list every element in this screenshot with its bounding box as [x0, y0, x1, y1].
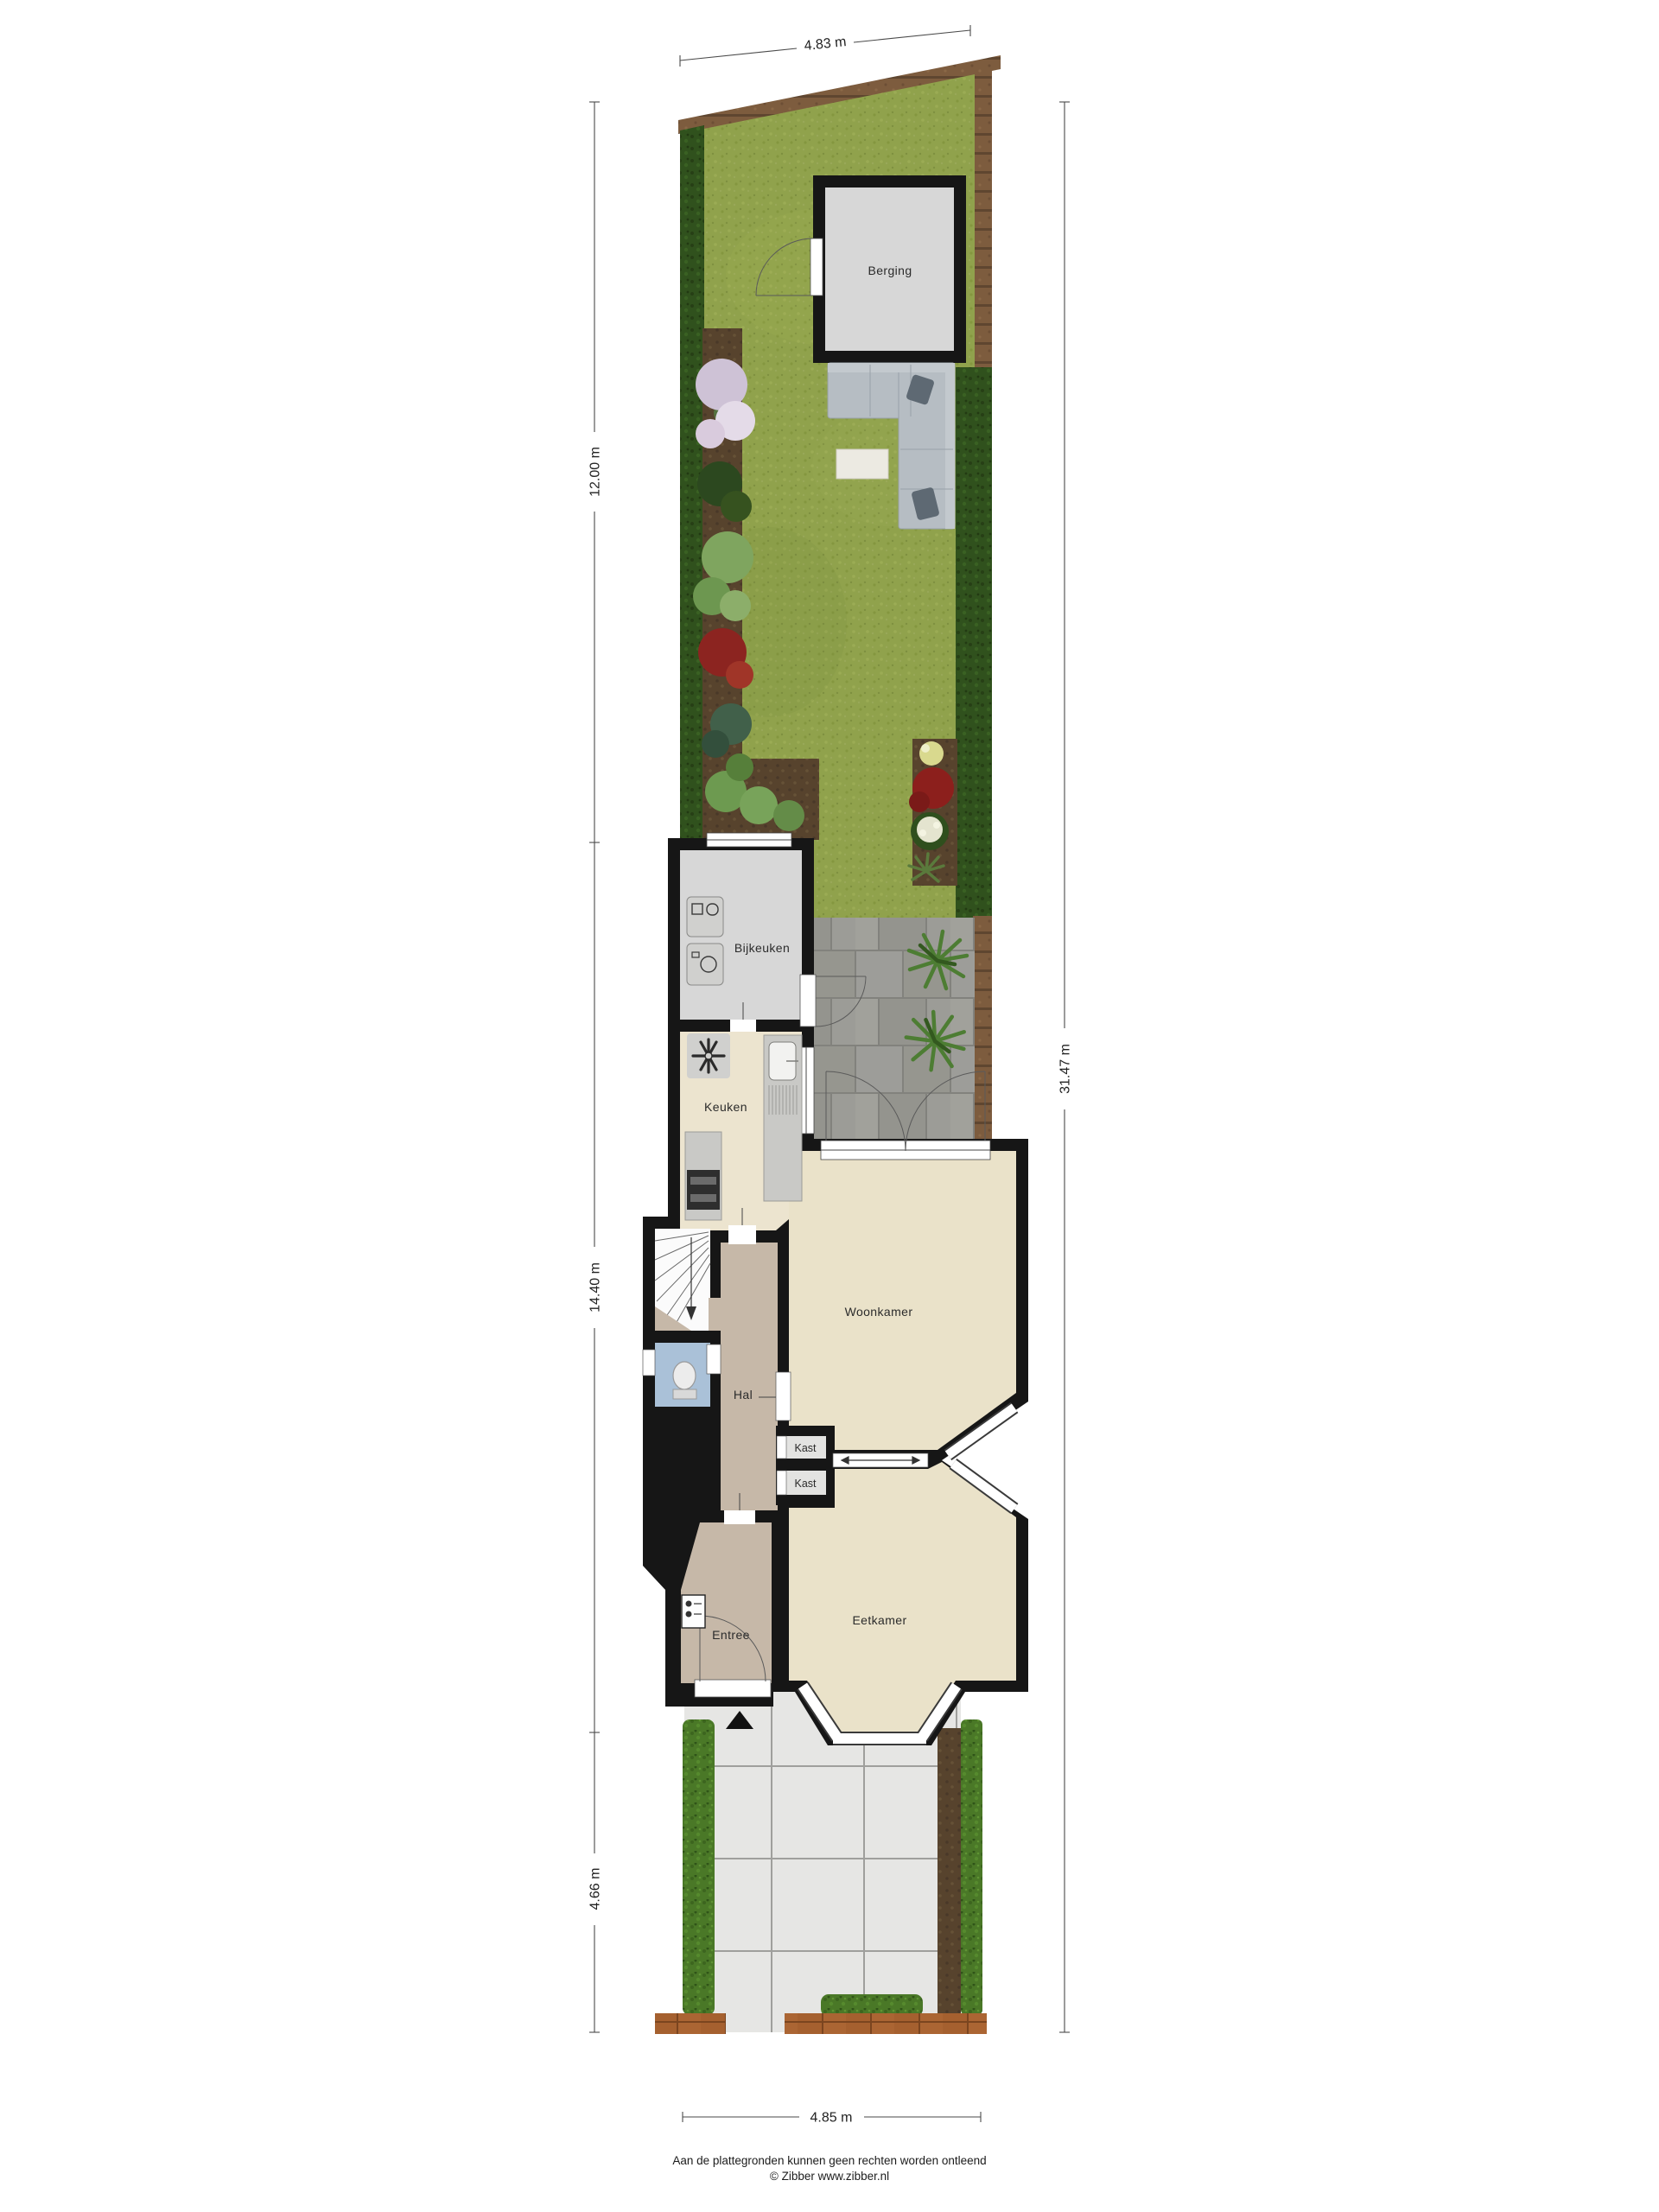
- terrace: [813, 918, 975, 1151]
- floor-plan-svg: Berging: [0, 0, 1659, 2212]
- room-label-entree: Entree: [712, 1628, 750, 1642]
- front-bed-right: [938, 1728, 961, 2015]
- room-label-kast-top: Kast: [794, 1442, 817, 1454]
- room-label-eetkamer: Eetkamer: [852, 1613, 906, 1627]
- hal-woonkamer-door: [776, 1372, 791, 1421]
- berging-door: [810, 238, 823, 296]
- dim-label-front-yard: 4.66 m: [588, 1868, 603, 1910]
- dim-garden-depth: 12.00 m: [588, 102, 603, 842]
- footer-disclaimer: Aan de plattegronden kunnen geen rechten…: [0, 2153, 1659, 2184]
- dim-total-depth: 31.47 m: [1058, 102, 1073, 2032]
- toilet-icon: [673, 1362, 696, 1399]
- dim-bottom-width: 4.85 m: [683, 2111, 981, 2126]
- stove-icon: [685, 1132, 721, 1220]
- fence-right-terrace: [973, 916, 992, 1151]
- disclaimer-text: Aan de plattegronden kunnen geen rechten…: [0, 2153, 1659, 2169]
- sidewalk-brick-right: [785, 2013, 987, 2034]
- room-label-hal: Hal: [734, 1388, 753, 1402]
- room-label-berging: Berging: [868, 264, 912, 277]
- dryer-icon: [687, 944, 723, 985]
- hal-entree-door: [724, 1510, 755, 1524]
- woonkamer-floor: [789, 1151, 1016, 1450]
- bijkeuken-keuken-door: [730, 1020, 756, 1032]
- kast-bottom-door: [777, 1471, 786, 1495]
- front-hedge-right: [961, 1719, 982, 2015]
- kast-top-door: [777, 1436, 786, 1459]
- keuken-hal-door: [728, 1225, 756, 1244]
- room-label-woonkamer: Woonkamer: [845, 1305, 913, 1319]
- meter-cupboard-icon: [682, 1595, 705, 1628]
- washing-machine-icon: [687, 897, 723, 937]
- dim-label-top: 4.83 m: [804, 35, 847, 54]
- stairs-opening: [709, 1298, 722, 1331]
- dim-label-garden: 12.00 m: [588, 447, 603, 497]
- kitchen-counter: [764, 1035, 802, 1201]
- dim-front-yard-depth: 4.66 m: [588, 1732, 603, 2032]
- toilet-door: [707, 1344, 721, 1374]
- front-door: [695, 1680, 771, 1697]
- room-label-keuken: Keuken: [704, 1100, 747, 1114]
- dim-top-width: 4.83 m: [680, 25, 970, 67]
- front-yard: [655, 1690, 987, 2034]
- garden-coffee-table: [836, 449, 888, 479]
- dim-house-depth: 14.40 m: [588, 842, 603, 1732]
- copyright-text: © Zibber www.zibber.nl: [0, 2169, 1659, 2184]
- fence-right-upper: [975, 62, 992, 373]
- sidewalk-brick-left: [655, 2013, 726, 2034]
- hal-floor: [721, 1243, 778, 1510]
- dim-label-total: 31.47 m: [1058, 1044, 1073, 1094]
- dim-label-house: 14.40 m: [588, 1262, 603, 1313]
- toilet-window: [643, 1350, 655, 1376]
- extractor-fan-icon: [687, 1033, 730, 1078]
- room-label-kast-bottom: Kast: [794, 1478, 817, 1490]
- room-label-bijkeuken: Bijkeuken: [734, 941, 790, 955]
- floor-plan-canvas: Berging: [0, 0, 1659, 2212]
- front-hedge-left: [683, 1719, 715, 2015]
- bijkeuken-terrace-door: [800, 975, 816, 1027]
- garden-hedge-right: [956, 367, 992, 918]
- dim-label-bottom: 4.85 m: [810, 2111, 853, 2126]
